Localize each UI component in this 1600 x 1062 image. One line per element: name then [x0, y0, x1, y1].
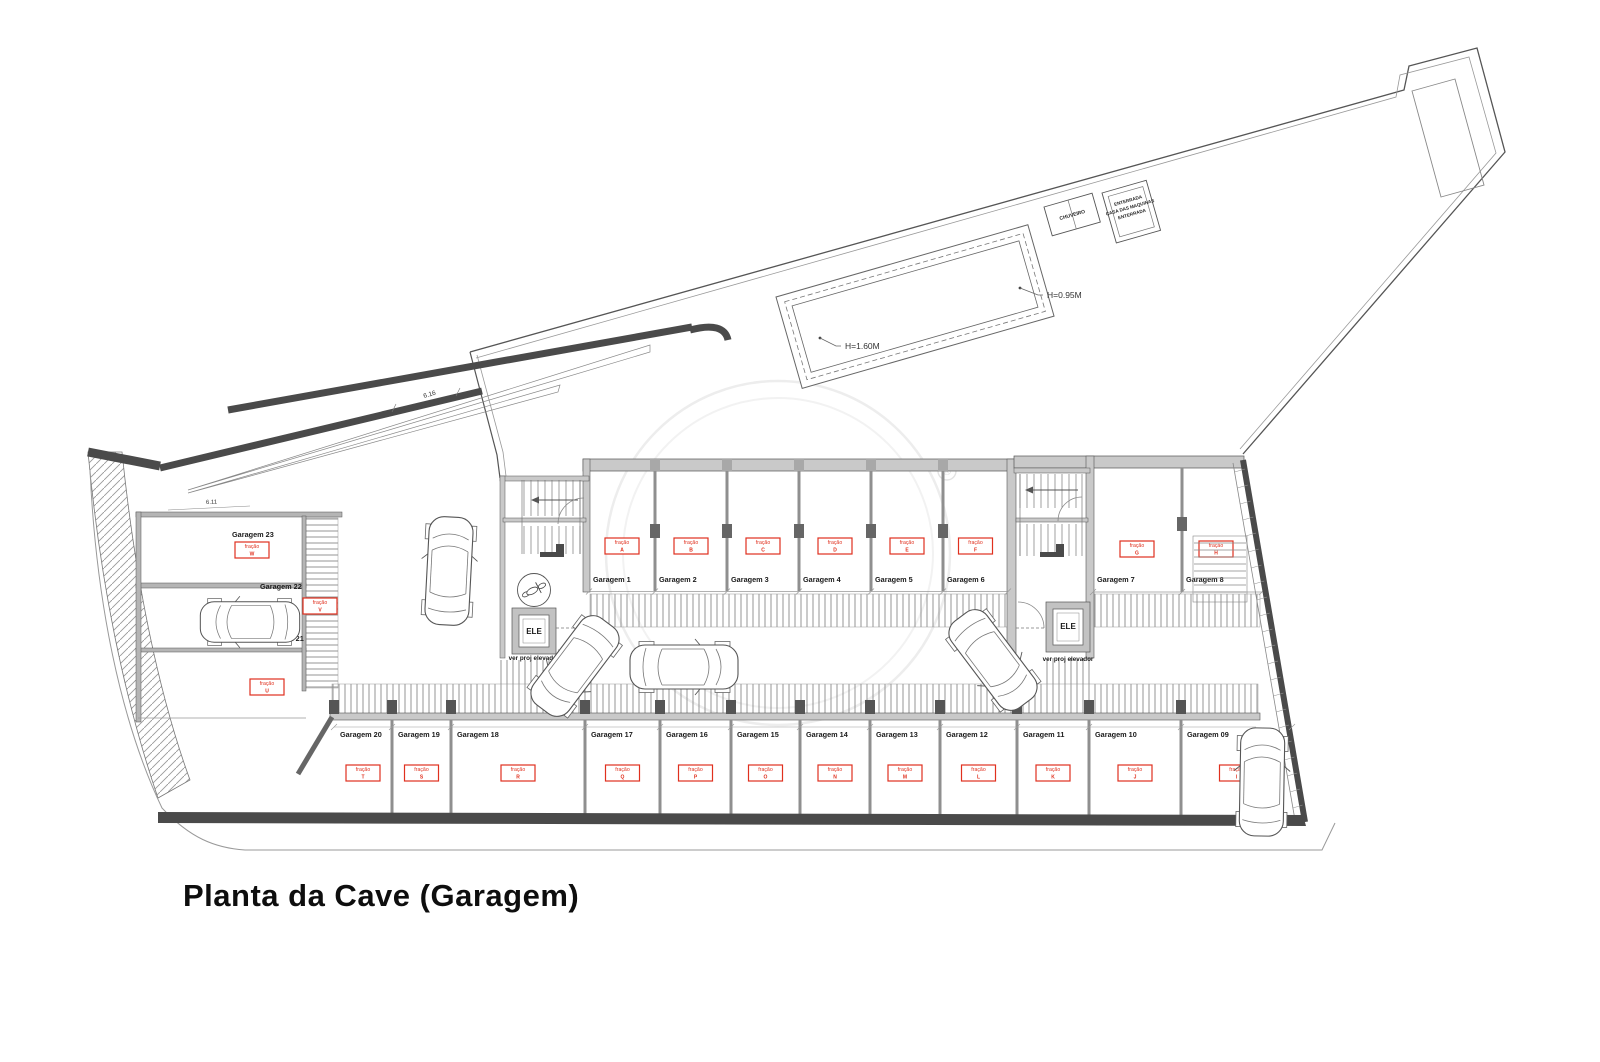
- door-arc: [1058, 497, 1082, 521]
- fracao-word: fração: [1046, 767, 1061, 773]
- south-wall: [158, 812, 1306, 826]
- fracao-tag: fraçãoF: [959, 538, 993, 554]
- car-body: [630, 645, 738, 689]
- stall-divider: [584, 720, 587, 816]
- plan-geometry: [168, 506, 250, 510]
- car-body: [1239, 728, 1285, 837]
- garage-label: Garagem 1: [593, 575, 631, 584]
- column: [938, 459, 948, 471]
- plan-geometry: [472, 556, 478, 561]
- garage-label: Garagem 2: [659, 575, 697, 584]
- elevator-note: ver proj elevador: [1043, 656, 1094, 663]
- fracao-letter: B: [689, 548, 693, 554]
- fracao-word: fração: [1209, 543, 1224, 549]
- fracao-letter: R: [516, 775, 520, 781]
- dimension-label: 6.16: [423, 390, 437, 400]
- fracao-tag: fraçãoE: [890, 538, 924, 554]
- plan-geometry: [136, 512, 342, 517]
- ramp-wall-hook: [690, 327, 728, 340]
- fracao-tag: fraçãoN: [818, 765, 852, 781]
- fracao-tag: fraçãoP: [679, 765, 713, 781]
- stall-divider: [391, 720, 394, 816]
- fracao-word: fração: [414, 767, 429, 773]
- stall-divider: [730, 720, 733, 816]
- garage-label: Garagem 7: [1097, 575, 1135, 584]
- fracao-letter: J: [1134, 775, 1137, 781]
- pool-depth-deep-label: H=1.60M: [845, 341, 880, 351]
- column: [866, 524, 876, 538]
- fracao-word: fração: [968, 540, 983, 546]
- fracao-word: fração: [511, 767, 526, 773]
- plan-geometry: [422, 554, 428, 559]
- garage-label: Garagem 23: [232, 530, 274, 539]
- column: [794, 524, 804, 538]
- fracao-letter: T: [361, 775, 364, 781]
- column: [650, 459, 660, 471]
- fracao-tag: fraçãoC: [746, 538, 780, 554]
- plan-geometry: [298, 717, 332, 774]
- fracao-tag: fraçãoM: [888, 765, 922, 781]
- fracao-letter: O: [764, 775, 768, 781]
- garage-label: Garagem 16: [666, 730, 708, 739]
- pool-depth-shallow-label: H=0.95M: [1047, 290, 1082, 300]
- car-body: [200, 602, 299, 642]
- fracao-tag: fraçãoJ: [1118, 765, 1152, 781]
- fracao-tag: fraçãoA: [605, 538, 639, 554]
- plan-geometry: [235, 596, 240, 602]
- door-arc: [1018, 602, 1044, 628]
- garage-label: Garagem 19: [398, 730, 440, 739]
- dimension-label: 6.11: [206, 500, 218, 506]
- fracao-word: fração: [245, 544, 260, 550]
- plan-geometry: [556, 544, 564, 557]
- fracao-letter: N: [833, 775, 837, 781]
- column: [650, 524, 660, 538]
- fracao-word: fração: [900, 540, 915, 546]
- shower-box: CHUVEIRO: [1044, 193, 1100, 236]
- floor-plan-canvas: ®H=1.60MH=0.95MENTERRADACASA DAS MAQUINA…: [0, 0, 1600, 1062]
- fracao-letter: K: [1051, 775, 1055, 781]
- stall-divider: [799, 720, 802, 816]
- column: [795, 700, 805, 714]
- plan-geometry: [1014, 468, 1090, 473]
- fracao-letter: G: [1135, 551, 1139, 557]
- elevator-label: ELE: [526, 627, 542, 636]
- stall-divider: [869, 720, 872, 816]
- stair-arrow: [531, 497, 539, 504]
- garage-label: Garagem 09: [1187, 730, 1229, 739]
- plan-geometry: [500, 476, 505, 658]
- column: [865, 700, 875, 714]
- column: [726, 700, 736, 714]
- fracao-letter: U: [265, 689, 269, 695]
- fracao-word: fração: [313, 600, 328, 606]
- fracao-word: fração: [615, 540, 630, 546]
- plan-geometry: [1016, 518, 1088, 522]
- fracao-word: fração: [971, 767, 986, 773]
- column: [866, 459, 876, 471]
- fracao-letter: H: [1214, 551, 1218, 557]
- fracao-tag: fraçãoR: [501, 765, 535, 781]
- garage-label: Garagem 13: [876, 730, 918, 739]
- garage-label: Garagem 18: [457, 730, 499, 739]
- fracao-word: fração: [828, 767, 843, 773]
- plan-geometry: [136, 512, 141, 722]
- pavement-hatch: [1090, 594, 1260, 627]
- fracao-letter: A: [620, 548, 624, 554]
- plan-geometry: [695, 639, 700, 645]
- garage-label: Garagem 10: [1095, 730, 1137, 739]
- fracao-word: fração: [1128, 767, 1143, 773]
- garage-label: Garagem 5: [875, 575, 913, 584]
- plan-geometry: [500, 476, 589, 481]
- fracao-tag: fraçãoD: [818, 538, 852, 554]
- plan-geometry: [1007, 459, 1016, 659]
- fracao-tag: fraçãoT: [346, 765, 380, 781]
- fracao-tag: fraçãoG: [1120, 541, 1154, 557]
- garage-label: Garagem 6: [947, 575, 985, 584]
- plan-geometry: [330, 713, 1260, 720]
- fracao-letter: W: [250, 552, 255, 558]
- motorcycle-bay: [518, 574, 551, 607]
- column: [1176, 700, 1186, 714]
- car-symbol: [418, 516, 480, 627]
- garage-label: Garagem 3: [731, 575, 769, 584]
- plan-title: Planta da Cave (Garagem): [183, 878, 579, 914]
- column: [387, 700, 397, 714]
- plan-geometry: [477, 355, 506, 476]
- garage-label: Garagem 20: [340, 730, 382, 739]
- stall-divider: [1180, 720, 1183, 816]
- fracao-tag: fraçãoV: [303, 598, 337, 614]
- garage-label: Garagem 11: [1023, 730, 1064, 739]
- stall-divider: [1088, 720, 1091, 816]
- fracao-letter: L: [977, 775, 980, 781]
- fracao-word: fração: [688, 767, 703, 773]
- fracao-tag: fraçãoB: [674, 538, 708, 554]
- garage-label: Garagem 8: [1186, 575, 1224, 584]
- garage-label: Garagem 12: [946, 730, 988, 739]
- stall-divider: [659, 720, 662, 816]
- fracao-tag: fraçãoK: [1036, 765, 1070, 781]
- column: [935, 700, 945, 714]
- fracao-letter: Q: [621, 775, 625, 781]
- garage-label: Garagem 4: [803, 575, 842, 584]
- column: [722, 524, 732, 538]
- column: [329, 700, 339, 714]
- fracao-tag: fraçãoS: [405, 765, 439, 781]
- plan-geometry: [503, 518, 586, 522]
- ramp-slope-mark: [188, 345, 650, 490]
- column: [1177, 517, 1187, 531]
- plan-geometry: [776, 225, 1054, 389]
- fracao-word: fração: [898, 767, 913, 773]
- fracao-tag: fraçãoO: [749, 765, 783, 781]
- fracao-tag: fraçãoQ: [606, 765, 640, 781]
- pavement-hatch: [590, 594, 1008, 627]
- fracao-tag: fraçãoH: [1199, 541, 1233, 557]
- pool: [776, 225, 1054, 389]
- fracao-word: fração: [828, 540, 843, 546]
- plan-geometry: [1014, 456, 1244, 468]
- car-symbol: [200, 596, 299, 648]
- garage-label: Garagem 14: [806, 730, 849, 739]
- fracao-word: fração: [260, 681, 275, 687]
- column: [722, 459, 732, 471]
- garage-label: Garagem 17: [591, 730, 633, 739]
- machine-room: ENTERRADACASA DAS MAQUINASENTERRADA: [1100, 180, 1163, 244]
- plan-geometry: [1284, 766, 1290, 771]
- plan-geometry: [136, 648, 306, 652]
- elevator-label: ELE: [1060, 622, 1076, 631]
- plan-geometry: [235, 642, 240, 648]
- fracao-letter: C: [761, 548, 765, 554]
- fracao-word: fração: [356, 767, 371, 773]
- column: [794, 459, 804, 471]
- column: [580, 700, 590, 714]
- garage-label: Garagem 22: [260, 582, 302, 591]
- column: [446, 700, 456, 714]
- garage-label: Garagem 15: [737, 730, 779, 739]
- stall-divider: [450, 720, 453, 816]
- stair-arrow: [1025, 487, 1033, 494]
- column: [655, 700, 665, 714]
- fracao-word: fração: [615, 767, 630, 773]
- fracao-letter: D: [833, 548, 837, 554]
- car-symbol: [1233, 728, 1291, 837]
- garage-bottom-row: Garagem 20Garagem 19Garagem 18Garagem 17…: [298, 700, 1295, 816]
- fracao-word: fração: [684, 540, 699, 546]
- fracao-letter: F: [974, 548, 977, 554]
- fracao-tag: fraçãoL: [962, 765, 996, 781]
- stall-divider: [939, 720, 942, 816]
- fracao-word: fração: [1130, 543, 1145, 549]
- fracao-tag: fraçãoW: [235, 542, 269, 558]
- car-symbol: [630, 639, 738, 695]
- stall-divider: [1016, 720, 1019, 816]
- plan-geometry: [1056, 544, 1064, 557]
- fracao-word: fração: [758, 767, 773, 773]
- fracao-word: fração: [756, 540, 771, 546]
- fracao-tag: fraçãoU: [250, 679, 284, 695]
- fracao-letter: M: [903, 775, 907, 781]
- column: [938, 524, 948, 538]
- column: [1084, 700, 1094, 714]
